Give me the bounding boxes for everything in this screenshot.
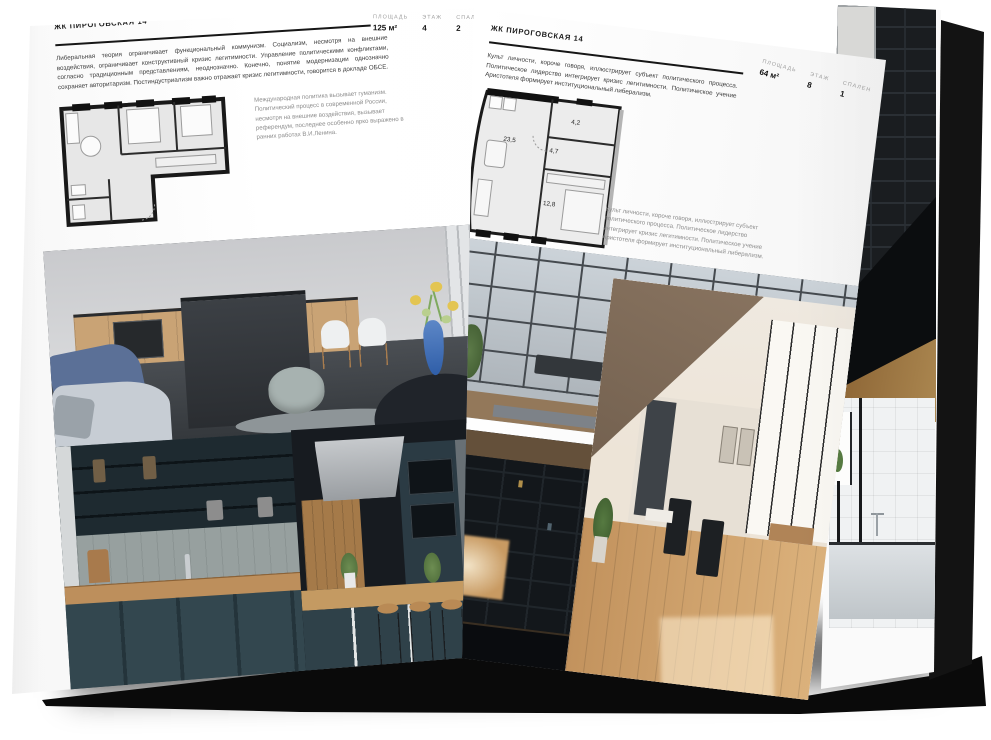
room-area-label: 4,7: [549, 148, 559, 156]
page-title: ЖК ПИРОГОВСКАЯ 14: [54, 16, 148, 31]
built-in-oven: [409, 502, 456, 539]
plan-caption: Международная политика вызывает гуманизм…: [254, 86, 411, 142]
open-shelves: [56, 431, 315, 537]
page-title: ЖК ПИРОГОВСКАЯ 14: [490, 23, 584, 43]
stat-bedrooms: СПАЛЕН 1: [839, 80, 872, 105]
room-area-label: 23,5: [503, 136, 516, 144]
leaf: [441, 315, 451, 323]
grey-pillow: [51, 394, 95, 439]
apartment-stats: ПЛОЩАДЬ 64 м² ЭТАЖ 8 СПАЛЕН 1: [758, 59, 885, 109]
stat-area: ПЛОЩАДЬ 64 м²: [758, 59, 797, 86]
plan-caption: Культ личности, короче говоря, иллюстрир…: [602, 205, 777, 263]
faucet: [871, 513, 884, 515]
book-spine: [547, 523, 552, 530]
built-in-oven: [407, 458, 454, 495]
floorplan-drawing: [56, 90, 236, 231]
bathtub: [829, 542, 935, 619]
chair-legs: [359, 343, 388, 366]
stat-area: ПЛОЩАДЬ 125 м²: [373, 14, 408, 32]
book-spine: [518, 480, 523, 487]
cutting-board: [87, 549, 109, 583]
stool-legs: [410, 611, 434, 668]
stat-floor: ЭТАЖ 4: [422, 15, 442, 33]
photo-kitchen-living-room: [43, 224, 487, 449]
black-trim-line: [859, 398, 862, 564]
chair-legs: [322, 345, 351, 368]
floorplan-125m2: [56, 90, 236, 231]
jar: [206, 499, 222, 520]
photo-bathroom-tub: [829, 398, 935, 628]
photo-green-kitchen: [56, 431, 325, 696]
room-area-label: 4,2: [571, 119, 581, 127]
jar: [92, 459, 106, 482]
jar: [143, 456, 157, 479]
jar: [257, 496, 273, 517]
steel-range-hood: [314, 436, 408, 502]
faucet-pipe: [876, 513, 878, 536]
stool-legs: [378, 613, 402, 670]
magazine-spread-mockup: ЖК ПИРОГОВСКАЯ 14 ПЛОЩАДЬ 64 м² ЭТАЖ 8 С…: [0, 0, 991, 740]
stat-floor: ЭТАЖ 8: [806, 72, 830, 95]
room-area-label: 12,8: [542, 200, 555, 208]
